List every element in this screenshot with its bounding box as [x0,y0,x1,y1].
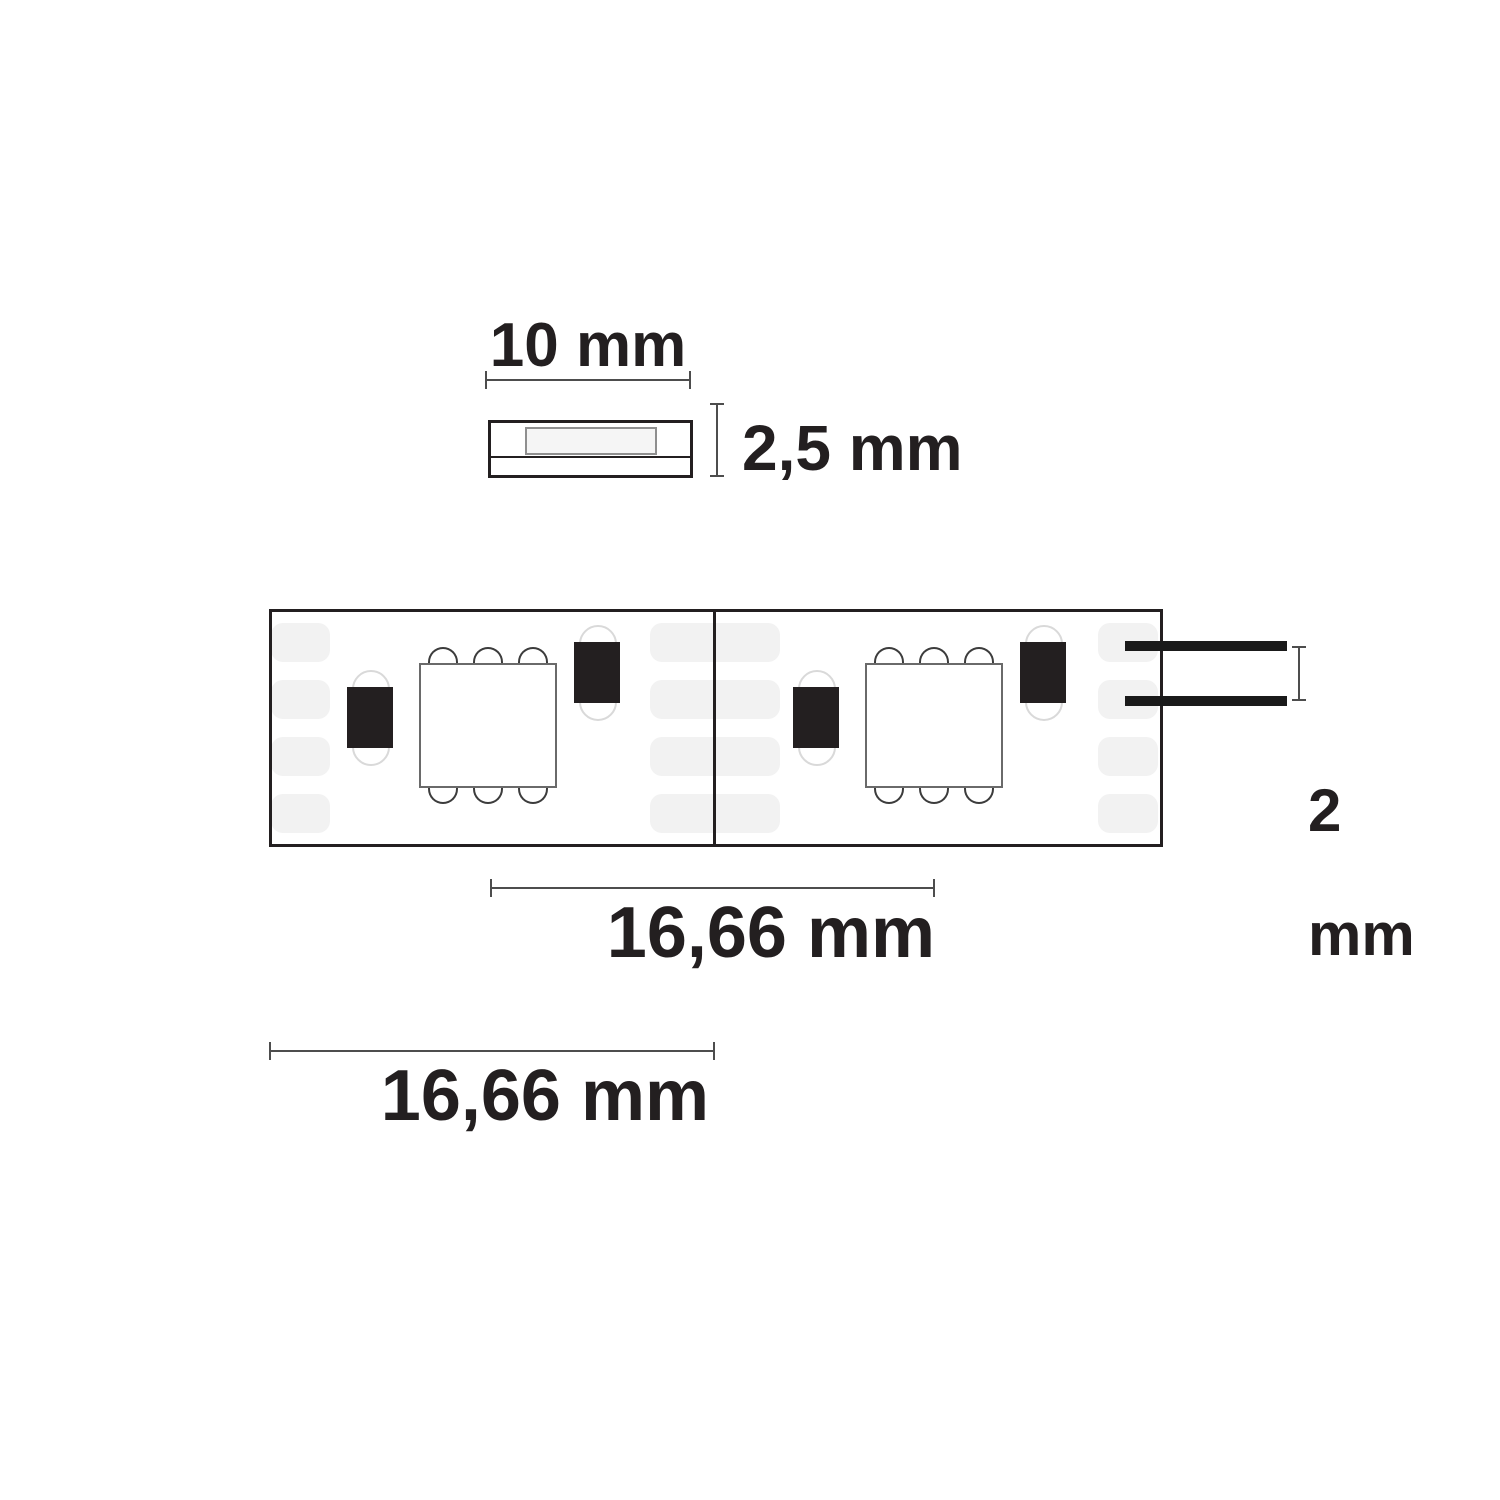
strip-width-dimension-line [485,379,691,381]
strip-width-label: 10 mm [485,310,691,381]
wire-pitch-value: 2 [1308,777,1341,844]
wire-pitch-unit: mm [1308,901,1415,968]
strip-height-dimension-line [716,403,718,477]
wire-pitch-label: 2 mm [1208,718,1415,1028]
strip-outline [269,609,1163,847]
cross-section-led-module [525,427,657,455]
led-pitch-label: 16,66 mm [585,892,935,974]
cross-section-layer-divider [491,456,690,458]
led-pitch-dimension-line [490,887,935,889]
segment-divider [713,609,716,847]
strip-height-label: 2,5 mm [742,411,963,485]
segment-length-label: 16,66 mm [359,1055,709,1137]
wire-pitch-dimension-line [1298,646,1300,701]
connection-wire [1125,641,1287,651]
diagram-canvas: 10 mm 2,5 mm [0,0,1500,1500]
segment-length-dimension-line [269,1050,715,1052]
connection-wire [1125,696,1287,706]
